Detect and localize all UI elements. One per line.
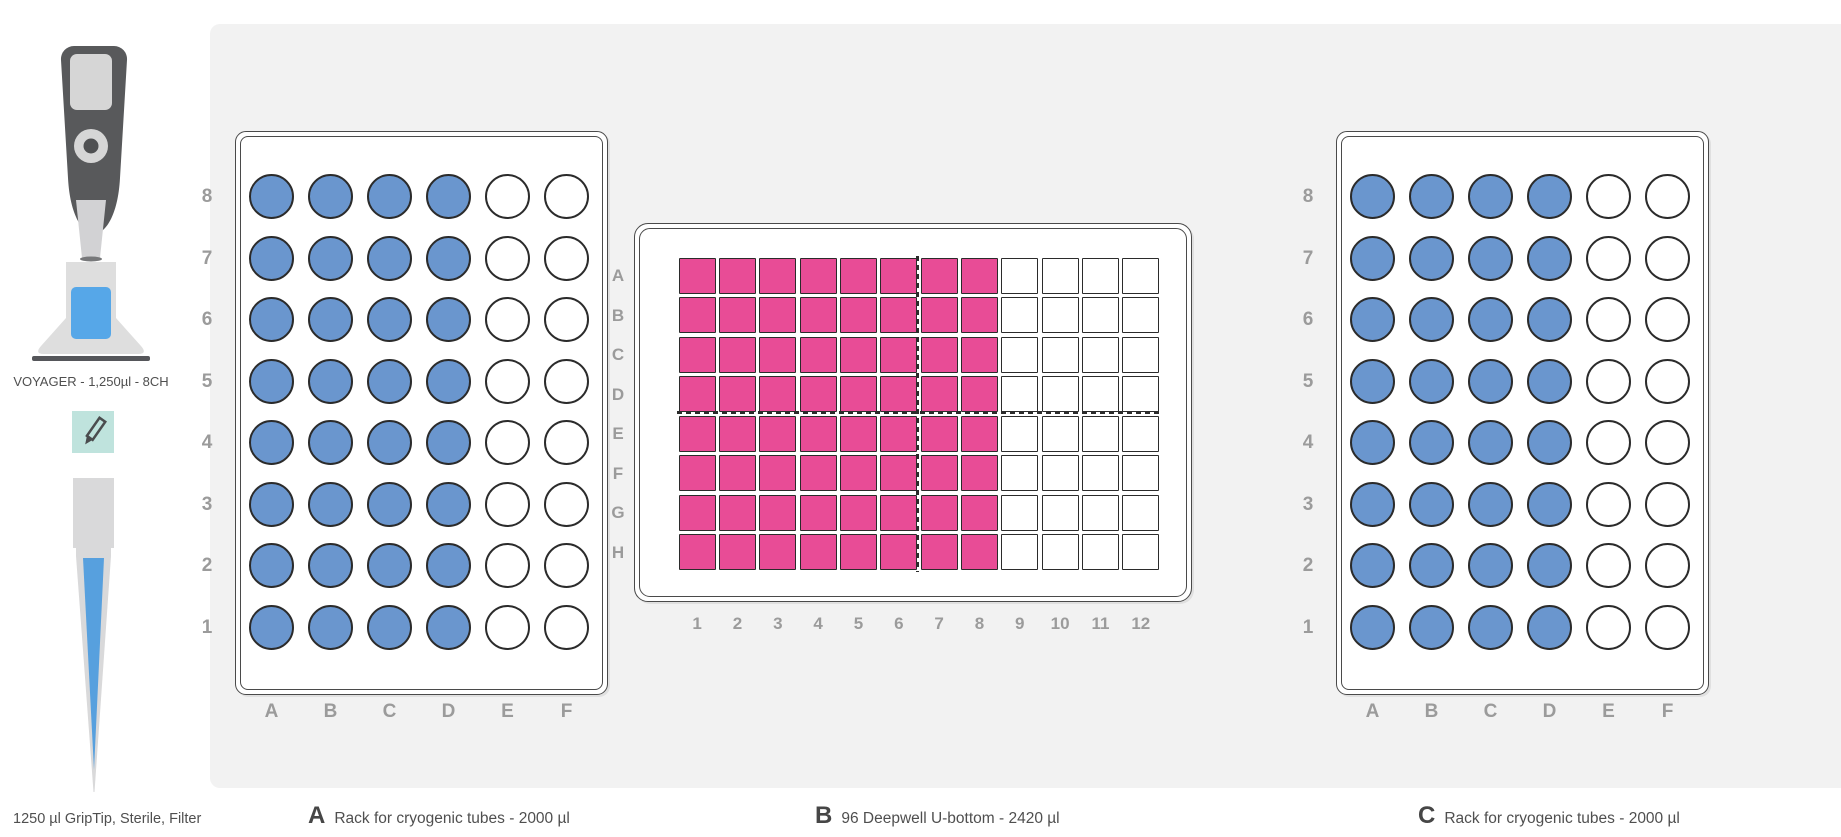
well-A-D5[interactable] <box>426 359 471 404</box>
well-B-G12[interactable] <box>1122 495 1159 531</box>
well-B-B8[interactable] <box>961 297 998 333</box>
well-A-B1[interactable] <box>308 605 353 650</box>
row-label: F <box>605 454 631 494</box>
legend-labware-c: C Rack for cryogenic tubes - 2000 µl <box>1418 802 1680 830</box>
well-B-E1[interactable] <box>679 416 716 452</box>
well-A-F3[interactable] <box>544 482 589 527</box>
col-label: E <box>478 699 537 725</box>
well-B-D10[interactable] <box>1042 376 1079 412</box>
well-C-A6[interactable] <box>1350 297 1395 342</box>
well-A-D1[interactable] <box>426 605 471 650</box>
well-B-G10[interactable] <box>1042 495 1079 531</box>
well-B-C5[interactable] <box>840 337 877 373</box>
well-C-C4[interactable] <box>1468 420 1513 465</box>
well-A-A5[interactable] <box>249 359 294 404</box>
well-A-C6[interactable] <box>367 297 412 342</box>
well-C-E4[interactable] <box>1586 420 1631 465</box>
row-label: 5 <box>1289 351 1327 413</box>
col-label: 10 <box>1040 611 1080 637</box>
well-B-E5[interactable] <box>840 416 877 452</box>
well-C-B5[interactable] <box>1409 359 1454 404</box>
well-B-B1[interactable] <box>679 297 716 333</box>
row-label: A <box>605 256 631 296</box>
well-B-G4[interactable] <box>800 495 837 531</box>
col-label: B <box>1402 699 1461 725</box>
well-B-B3[interactable] <box>759 297 796 333</box>
pipette-base-bar <box>32 356 150 361</box>
well-B-E3[interactable] <box>759 416 796 452</box>
labware-b-deepwell-plate: ABCDEFGH 123456789101112 <box>634 223 1192 602</box>
well-A-A3[interactable] <box>249 482 294 527</box>
well-A-A1[interactable] <box>249 605 294 650</box>
col-label: E <box>1579 699 1638 725</box>
well-B-G6[interactable] <box>880 495 917 531</box>
well-A-F2[interactable] <box>544 543 589 588</box>
well-B-E9[interactable] <box>1001 416 1038 452</box>
well-C-F1[interactable] <box>1645 605 1690 650</box>
legend-labware-b: B 96 Deepwell U-bottom - 2420 µl <box>815 802 1060 830</box>
well-B-H12[interactable] <box>1122 534 1159 570</box>
col-labels: 123456789101112 <box>677 611 1161 637</box>
well-C-C5[interactable] <box>1468 359 1513 404</box>
well-A-C2[interactable] <box>367 543 412 588</box>
col-label: 1 <box>677 611 717 637</box>
well-C-E2[interactable] <box>1586 543 1631 588</box>
well-B-E4[interactable] <box>800 416 837 452</box>
well-A-A6[interactable] <box>249 297 294 342</box>
row-label: 2 <box>1289 535 1327 597</box>
well-B-E11[interactable] <box>1082 416 1119 452</box>
col-labels: ABCDEF <box>1343 699 1697 725</box>
well-B-D4[interactable] <box>800 376 837 412</box>
row-labels: 87654321 <box>1289 166 1327 658</box>
well-A-E6[interactable] <box>485 297 530 342</box>
labware-frame <box>240 136 603 690</box>
well-A-B4[interactable] <box>308 420 353 465</box>
well-B-H4[interactable] <box>800 534 837 570</box>
well-B-F9[interactable] <box>1001 455 1038 491</box>
well-C-B1[interactable] <box>1409 605 1454 650</box>
legend-text: Rack for cryogenic tubes - 2000 µl <box>334 810 570 828</box>
well-C-F2[interactable] <box>1645 543 1690 588</box>
well-B-C4[interactable] <box>800 337 837 373</box>
well-B-A11[interactable] <box>1082 258 1119 294</box>
row-label: 4 <box>188 412 226 474</box>
well-B-E12[interactable] <box>1122 416 1159 452</box>
well-A-D2[interactable] <box>426 543 471 588</box>
col-label: F <box>537 699 596 725</box>
well-C-F8[interactable] <box>1645 174 1690 219</box>
pipette-collar <box>80 257 102 262</box>
well-C-A4[interactable] <box>1350 420 1395 465</box>
well-B-D5[interactable] <box>840 376 877 412</box>
well-B-A4[interactable] <box>800 258 837 294</box>
well-A-D4[interactable] <box>426 420 471 465</box>
well-C-B4[interactable] <box>1409 420 1454 465</box>
well-B-D8[interactable] <box>961 376 998 412</box>
col-label: C <box>1461 699 1520 725</box>
pipette-sidebar: VOYAGER - 1,250µl - 8CH 1250 µl GripTip,… <box>0 0 210 837</box>
well-C-C6[interactable] <box>1468 297 1513 342</box>
well-A-E5[interactable] <box>485 359 530 404</box>
well-A-A2[interactable] <box>249 543 294 588</box>
well-C-B8[interactable] <box>1409 174 1454 219</box>
well-B-E6[interactable] <box>880 416 917 452</box>
row-label: 7 <box>1289 228 1327 290</box>
labware-frame <box>1341 136 1704 690</box>
col-label: D <box>1520 699 1579 725</box>
well-A-E1[interactable] <box>485 605 530 650</box>
well-A-A4[interactable] <box>249 420 294 465</box>
row-label: G <box>605 493 631 533</box>
tip-collar <box>73 478 114 548</box>
well-C-D4[interactable] <box>1527 420 1572 465</box>
well-B-H1[interactable] <box>679 534 716 570</box>
pipette-screen <box>70 54 112 110</box>
col-label: 6 <box>879 611 919 637</box>
well-B-G11[interactable] <box>1082 495 1119 531</box>
well-A-E7[interactable] <box>485 236 530 281</box>
row-label: 8 <box>188 166 226 228</box>
row-labels: ABCDEFGH <box>605 256 631 572</box>
well-B-D7[interactable] <box>921 376 958 412</box>
col-label: A <box>1343 699 1402 725</box>
col-label: 8 <box>959 611 999 637</box>
well-B-F12[interactable] <box>1122 455 1159 491</box>
pencil-icon[interactable] <box>72 411 114 453</box>
well-B-A3[interactable] <box>759 258 796 294</box>
well-B-C12[interactable] <box>1122 337 1159 373</box>
well-C-A2[interactable] <box>1350 543 1395 588</box>
col-label: 11 <box>1080 611 1120 637</box>
well-C-E5[interactable] <box>1586 359 1631 404</box>
well-A-E3[interactable] <box>485 482 530 527</box>
well-B-A10[interactable] <box>1042 258 1079 294</box>
legend-letter: B <box>815 802 832 830</box>
well-B-C10[interactable] <box>1042 337 1079 373</box>
well-B-C2[interactable] <box>719 337 756 373</box>
well-B-H7[interactable] <box>921 534 958 570</box>
well-B-F2[interactable] <box>719 455 756 491</box>
well-C-D8[interactable] <box>1527 174 1572 219</box>
well-A-B7[interactable] <box>308 236 353 281</box>
well-C-F5[interactable] <box>1645 359 1690 404</box>
col-label: 9 <box>1000 611 1040 637</box>
well-C-D6[interactable] <box>1527 297 1572 342</box>
well-B-A6[interactable] <box>880 258 917 294</box>
well-A-F7[interactable] <box>544 236 589 281</box>
well-C-C8[interactable] <box>1468 174 1513 219</box>
well-B-H6[interactable] <box>880 534 917 570</box>
quadrant-divider-vertical <box>916 256 919 572</box>
well-C-F3[interactable] <box>1645 482 1690 527</box>
pipette-illustration[interactable] <box>8 40 173 370</box>
well-C-E8[interactable] <box>1586 174 1631 219</box>
well-C-D7[interactable] <box>1527 236 1572 281</box>
well-C-B3[interactable] <box>1409 482 1454 527</box>
well-A-B8[interactable] <box>308 174 353 219</box>
col-label: 4 <box>798 611 838 637</box>
well-A-F6[interactable] <box>544 297 589 342</box>
well-B-B12[interactable] <box>1122 297 1159 333</box>
well-B-A8[interactable] <box>961 258 998 294</box>
well-C-E6[interactable] <box>1586 297 1631 342</box>
row-label: 8 <box>1289 166 1327 228</box>
well-A-D3[interactable] <box>426 482 471 527</box>
well-A-D8[interactable] <box>426 174 471 219</box>
row-label: 7 <box>188 228 226 290</box>
col-label: B <box>301 699 360 725</box>
row-label: 1 <box>1289 597 1327 659</box>
well-B-G8[interactable] <box>961 495 998 531</box>
well-B-F11[interactable] <box>1082 455 1119 491</box>
well-A-C4[interactable] <box>367 420 412 465</box>
row-label: E <box>605 414 631 454</box>
well-B-C3[interactable] <box>759 337 796 373</box>
well-C-B6[interactable] <box>1409 297 1454 342</box>
well-A-B6[interactable] <box>308 297 353 342</box>
col-label: 7 <box>919 611 959 637</box>
col-label: 12 <box>1121 611 1161 637</box>
well-B-B9[interactable] <box>1001 297 1038 333</box>
pipette-dial-button <box>84 139 99 154</box>
well-B-H10[interactable] <box>1042 534 1079 570</box>
legend-labware-a: A Rack for cryogenic tubes - 2000 µl <box>308 802 570 830</box>
well-B-B4[interactable] <box>800 297 837 333</box>
col-labels: ABCDEF <box>242 699 596 725</box>
well-A-E2[interactable] <box>485 543 530 588</box>
well-C-D2[interactable] <box>1527 543 1572 588</box>
well-B-E7[interactable] <box>921 416 958 452</box>
well-B-H3[interactable] <box>759 534 796 570</box>
pipette-shaft <box>76 200 106 258</box>
tip-shoulder <box>76 548 111 556</box>
col-label: A <box>242 699 301 725</box>
well-A-A7[interactable] <box>249 236 294 281</box>
well-B-D9[interactable] <box>1001 376 1038 412</box>
col-label: F <box>1638 699 1697 725</box>
quadrant-divider-horizontal <box>677 411 1161 414</box>
labware-a-tube-rack: 87654321 ABCDEF <box>235 131 608 695</box>
well-C-C1[interactable] <box>1468 605 1513 650</box>
well-B-H8[interactable] <box>961 534 998 570</box>
well-A-B5[interactable] <box>308 359 353 404</box>
well-A-C1[interactable] <box>367 605 412 650</box>
well-A-F8[interactable] <box>544 174 589 219</box>
row-label: 6 <box>1289 289 1327 351</box>
well-B-C8[interactable] <box>961 337 998 373</box>
well-B-A12[interactable] <box>1122 258 1159 294</box>
well-C-F7[interactable] <box>1645 236 1690 281</box>
well-B-E10[interactable] <box>1042 416 1079 452</box>
well-B-A7[interactable] <box>921 258 958 294</box>
well-B-H9[interactable] <box>1001 534 1038 570</box>
well-B-A9[interactable] <box>1001 258 1038 294</box>
row-label: 6 <box>188 289 226 351</box>
well-B-C1[interactable] <box>679 337 716 373</box>
well-C-A3[interactable] <box>1350 482 1395 527</box>
well-B-B7[interactable] <box>921 297 958 333</box>
well-A-D7[interactable] <box>426 236 471 281</box>
well-B-G5[interactable] <box>840 495 877 531</box>
well-B-A1[interactable] <box>679 258 716 294</box>
well-C-E7[interactable] <box>1586 236 1631 281</box>
well-A-E8[interactable] <box>485 174 530 219</box>
row-label: B <box>605 296 631 336</box>
well-B-E8[interactable] <box>961 416 998 452</box>
well-A-F4[interactable] <box>544 420 589 465</box>
tip-illustration[interactable] <box>60 470 130 800</box>
well-B-D2[interactable] <box>719 376 756 412</box>
well-C-B7[interactable] <box>1409 236 1454 281</box>
well-A-C5[interactable] <box>367 359 412 404</box>
well-B-D11[interactable] <box>1082 376 1119 412</box>
well-B-A5[interactable] <box>840 258 877 294</box>
row-label: H <box>605 533 631 573</box>
well-A-C7[interactable] <box>367 236 412 281</box>
legend-text: Rack for cryogenic tubes - 2000 µl <box>1444 810 1680 828</box>
well-A-F1[interactable] <box>544 605 589 650</box>
col-label: 3 <box>758 611 798 637</box>
legend-letter: A <box>308 802 325 830</box>
well-A-F5[interactable] <box>544 359 589 404</box>
well-B-F3[interactable] <box>759 455 796 491</box>
well-B-D12[interactable] <box>1122 376 1159 412</box>
well-B-B6[interactable] <box>880 297 917 333</box>
row-label: 1 <box>188 597 226 659</box>
well-C-C2[interactable] <box>1468 543 1513 588</box>
row-label: 2 <box>188 535 226 597</box>
well-C-E3[interactable] <box>1586 482 1631 527</box>
well-C-F4[interactable] <box>1645 420 1690 465</box>
app-canvas: VOYAGER - 1,250µl - 8CH 1250 µl GripTip,… <box>0 0 1841 837</box>
well-B-B5[interactable] <box>840 297 877 333</box>
well-B-A2[interactable] <box>719 258 756 294</box>
well-A-C3[interactable] <box>367 482 412 527</box>
well-B-G1[interactable] <box>679 495 716 531</box>
col-label: D <box>419 699 478 725</box>
col-label: 5 <box>838 611 878 637</box>
well-A-C8[interactable] <box>367 174 412 219</box>
well-B-D6[interactable] <box>880 376 917 412</box>
well-C-B2[interactable] <box>1409 543 1454 588</box>
row-label: D <box>605 375 631 415</box>
well-A-E4[interactable] <box>485 420 530 465</box>
well-A-B3[interactable] <box>308 482 353 527</box>
row-label: C <box>605 335 631 375</box>
well-B-F1[interactable] <box>679 455 716 491</box>
row-labels: 87654321 <box>188 166 226 658</box>
well-C-A8[interactable] <box>1350 174 1395 219</box>
well-C-E1[interactable] <box>1586 605 1631 650</box>
well-B-D3[interactable] <box>759 376 796 412</box>
tip-label: 1250 µl GripTip, Sterile, Filter <box>13 811 201 827</box>
well-C-A7[interactable] <box>1350 236 1395 281</box>
well-B-C9[interactable] <box>1001 337 1038 373</box>
well-C-C3[interactable] <box>1468 482 1513 527</box>
well-A-D6[interactable] <box>426 297 471 342</box>
row-label: 4 <box>1289 412 1327 474</box>
well-B-H11[interactable] <box>1082 534 1119 570</box>
well-C-A5[interactable] <box>1350 359 1395 404</box>
well-B-F4[interactable] <box>800 455 837 491</box>
well-B-H2[interactable] <box>719 534 756 570</box>
labware-c-tube-rack: 87654321 ABCDEF <box>1336 131 1709 695</box>
well-B-B11[interactable] <box>1082 297 1119 333</box>
well-B-G9[interactable] <box>1001 495 1038 531</box>
well-C-A1[interactable] <box>1350 605 1395 650</box>
well-B-G7[interactable] <box>921 495 958 531</box>
well-B-F8[interactable] <box>961 455 998 491</box>
pipette-label: VOYAGER - 1,250µl - 8CH <box>0 374 182 389</box>
well-B-F5[interactable] <box>840 455 877 491</box>
well-B-F6[interactable] <box>880 455 917 491</box>
well-B-B2[interactable] <box>719 297 756 333</box>
well-B-G2[interactable] <box>719 495 756 531</box>
well-B-C6[interactable] <box>880 337 917 373</box>
legend-text: 96 Deepwell U-bottom - 2420 µl <box>841 810 1059 828</box>
well-B-C7[interactable] <box>921 337 958 373</box>
well-B-F10[interactable] <box>1042 455 1079 491</box>
col-label: 2 <box>717 611 757 637</box>
well-C-D1[interactable] <box>1527 605 1572 650</box>
col-label: C <box>360 699 419 725</box>
pipette-blue-pad <box>71 287 111 339</box>
row-label: 5 <box>188 351 226 413</box>
well-B-B10[interactable] <box>1042 297 1079 333</box>
well-B-E2[interactable] <box>719 416 756 452</box>
well-C-C7[interactable] <box>1468 236 1513 281</box>
well-B-G3[interactable] <box>759 495 796 531</box>
well-C-F6[interactable] <box>1645 297 1690 342</box>
well-C-D5[interactable] <box>1527 359 1572 404</box>
well-A-B2[interactable] <box>308 543 353 588</box>
well-B-C11[interactable] <box>1082 337 1119 373</box>
well-B-F7[interactable] <box>921 455 958 491</box>
well-B-H5[interactable] <box>840 534 877 570</box>
well-C-D3[interactable] <box>1527 482 1572 527</box>
well-A-A8[interactable] <box>249 174 294 219</box>
well-B-D1[interactable] <box>679 376 716 412</box>
legend-letter: C <box>1418 802 1435 830</box>
row-label: 3 <box>1289 474 1327 536</box>
row-label: 3 <box>188 474 226 536</box>
